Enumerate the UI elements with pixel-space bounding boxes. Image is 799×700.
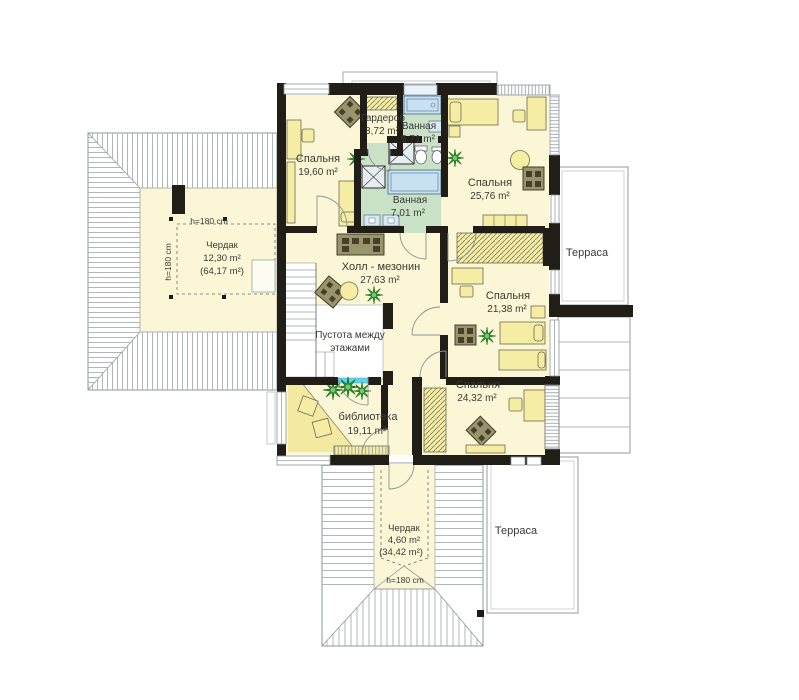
deck-wall (549, 305, 633, 317)
terrace-bottom (477, 457, 578, 617)
room-area-bedroom2: 25,76 m² (470, 191, 510, 202)
room-label-bath2: Ванная (393, 195, 427, 206)
room-label-bath1: Ванная (402, 121, 436, 132)
window-sill (527, 457, 541, 465)
terrace-post (477, 610, 484, 617)
room-area2-attic-left: (64,17 m²) (200, 266, 244, 277)
room-label-terrace-bottom: Терраса (495, 525, 538, 537)
chair (460, 286, 473, 297)
terrace-top-right (558, 167, 628, 305)
window-sill (267, 392, 275, 444)
room-label-bedroom2: Спальня (468, 177, 512, 189)
room-label-bedroom3: Спальня (486, 290, 530, 302)
plant-icon (365, 286, 383, 304)
window-sill (511, 457, 525, 465)
room-area-attic-bottom: 4,60 m² (388, 535, 420, 546)
room-area-library: 19,11 m² (348, 426, 387, 437)
armchair (455, 325, 476, 345)
room-area-hall: 27,63 m² (360, 275, 400, 286)
room-area-bedroom3: 21,38 m² (487, 304, 527, 315)
round-table (340, 282, 358, 300)
height-label-bottom: h=180 cm (386, 575, 424, 585)
bench (466, 445, 505, 453)
pillow (534, 325, 543, 341)
desk (524, 390, 545, 421)
attic-storage-box (252, 260, 275, 292)
room-label-wardrobe: Гардероб (361, 112, 405, 124)
bidet (432, 151, 442, 164)
nightstand (449, 126, 460, 137)
armchair (523, 167, 544, 190)
chair (513, 110, 525, 122)
desk (452, 268, 483, 284)
plant-icon (446, 149, 464, 167)
desk (527, 97, 546, 130)
height-label-left-side: h=180 cm (163, 243, 173, 281)
floor-plan-svg: Спальня 19,60 m² Гардероб 3,72 m² Ванная… (0, 0, 799, 700)
void-label-line1: Пустота между (315, 330, 385, 341)
chair (302, 129, 314, 142)
room-area-bedroom1: 19,60 m² (298, 167, 338, 178)
room-area-bath1: 5,71 m² (401, 134, 436, 145)
void-label-line2: этажами (330, 343, 370, 354)
room-label-bedroom4: Спальня (456, 379, 500, 391)
room-area-bedroom4: 24,32 m² (457, 393, 497, 404)
deck-right (558, 317, 630, 453)
room-area-bath2: 7,01 m² (391, 208, 426, 219)
room-area-wardrobe: 3,72 m² (365, 126, 400, 137)
room-label-library: библиотека (339, 411, 399, 423)
left-roof (88, 133, 277, 390)
chair (509, 398, 522, 411)
room-area-attic-left: 12,30 m² (203, 253, 241, 264)
floor-plan-page: Спальня 19,60 m² Гардероб 3,72 m² Ванная… (0, 0, 799, 700)
bathtub (404, 96, 441, 114)
room-label-hall: Холл - мезонин (342, 261, 420, 273)
room-label-terrace-top: Терраса (566, 247, 609, 259)
built-in-wardrobe (457, 233, 543, 263)
room-area2-attic-bottom: (34,42 m²) (379, 547, 423, 558)
plant-icon (478, 327, 496, 345)
chimney (172, 185, 185, 214)
window (404, 85, 437, 95)
pillow (538, 352, 545, 368)
nightstand (531, 306, 545, 318)
cabinet (287, 162, 295, 223)
bathtub (388, 170, 441, 194)
room-label-bedroom1: Спальня (296, 153, 340, 165)
pillow (450, 102, 461, 122)
wardrobe-rail (366, 97, 397, 110)
sofa (337, 234, 384, 255)
height-label-left-top: h=180 cm (190, 216, 228, 226)
room-label-attic-bottom: Чердак (388, 523, 421, 534)
room-label-attic-left: Чердак (206, 240, 239, 251)
toilet (416, 150, 427, 164)
